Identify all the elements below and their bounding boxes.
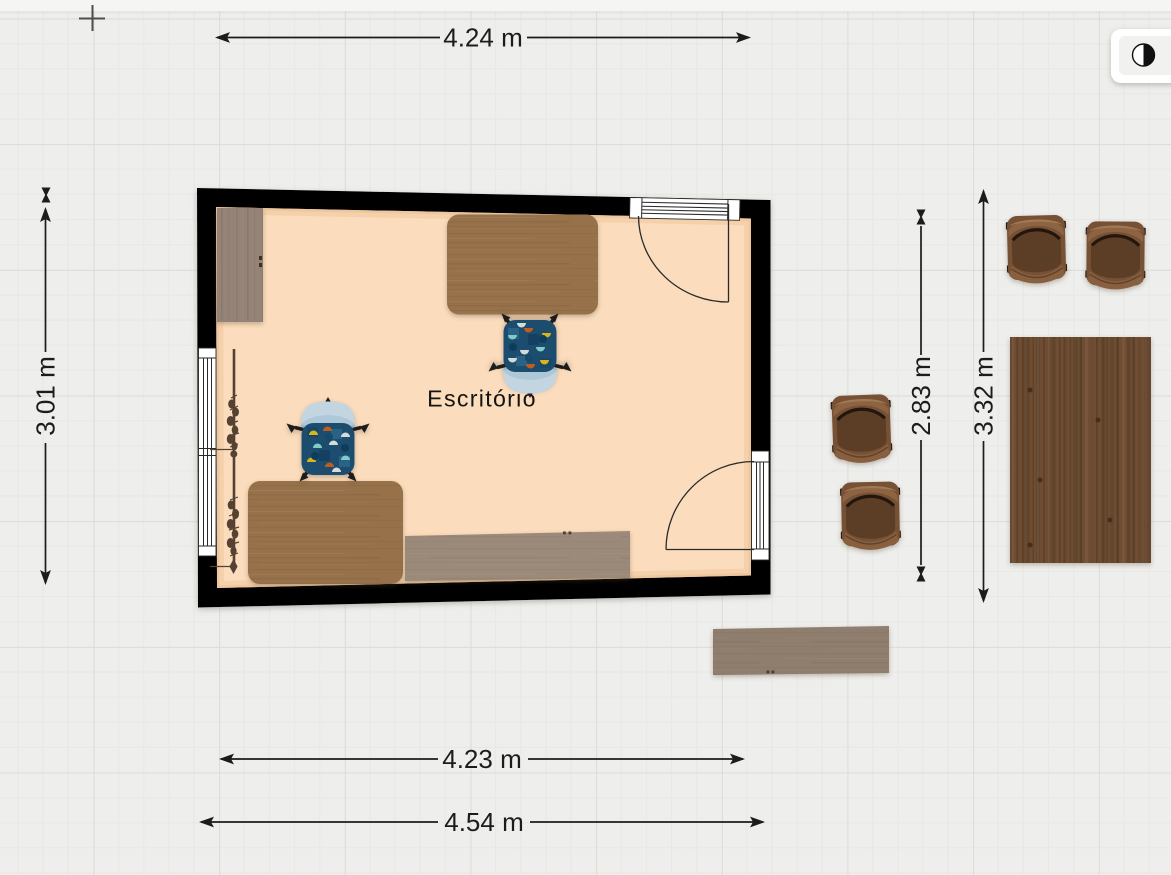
svg-text:4.54 m: 4.54 m — [444, 807, 524, 837]
svg-text:3.01 m: 3.01 m — [31, 356, 61, 436]
svg-text:3.32 m: 3.32 m — [969, 356, 999, 436]
svg-text:4.24 m: 4.24 m — [443, 23, 523, 53]
svg-text:2.83 m: 2.83 m — [906, 356, 936, 436]
svg-text:4.23 m: 4.23 m — [442, 744, 522, 774]
